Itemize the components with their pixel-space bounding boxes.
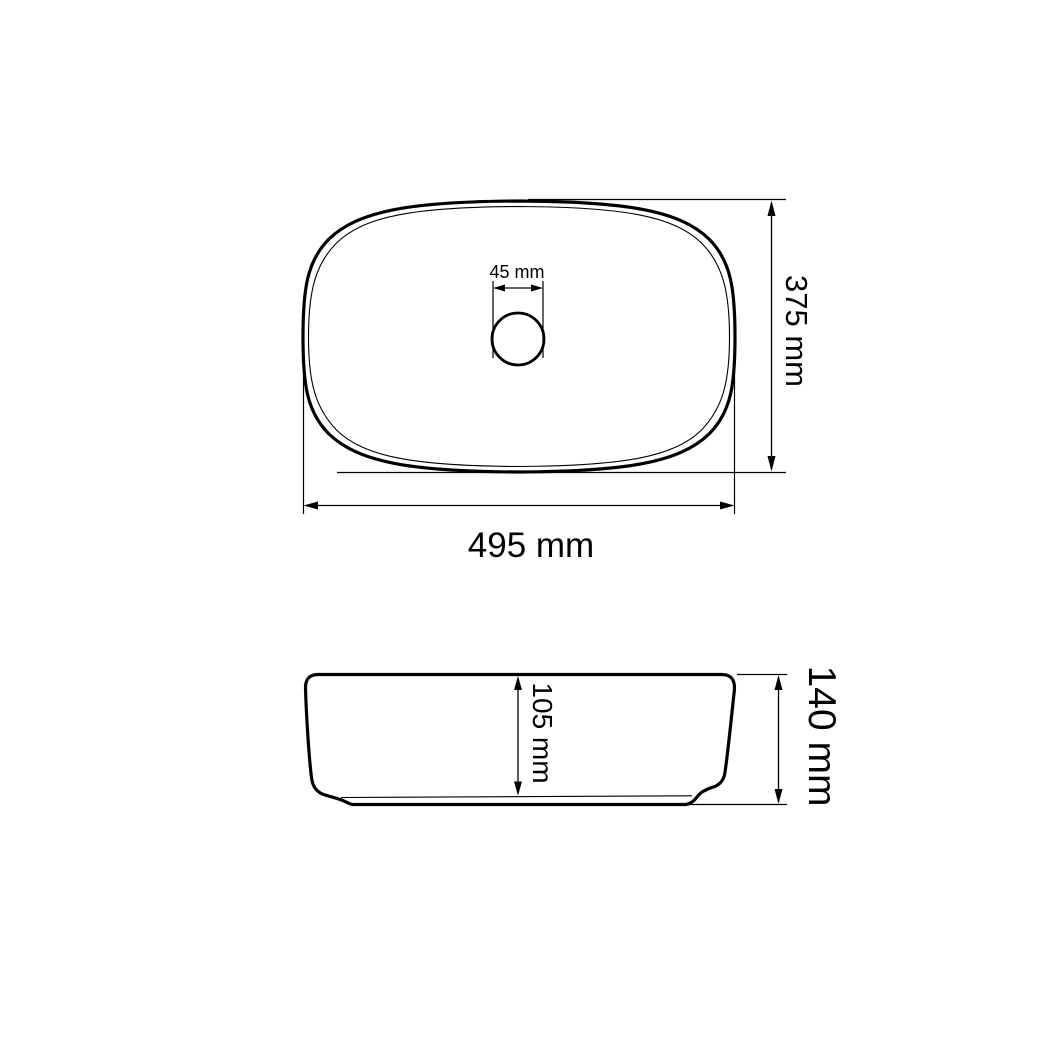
basin-dimension-drawing: 45 mm 375 mm 495 mm	[0, 0, 1050, 1050]
drain-diameter-dimension: 45 mm	[489, 262, 544, 358]
arrow-up-icon	[768, 201, 776, 217]
top-view-width-label: 495 mm	[468, 526, 594, 565]
top-view-height-dimension: 375 mm	[337, 200, 814, 473]
overall-height-dimension: 140 mm	[688, 666, 843, 807]
side-view: 105 mm 140 mm	[305, 666, 843, 807]
arrow-down-icon	[514, 782, 522, 796]
inner-depth-label: 105 mm	[527, 682, 558, 783]
base-top-edge	[341, 796, 692, 798]
top-view-outer-outline	[303, 201, 735, 472]
inner-depth-dimension: 105 mm	[514, 676, 558, 796]
drain-hole	[492, 313, 544, 365]
top-view-inner-outline	[309, 207, 730, 467]
top-view: 45 mm 375 mm 495 mm	[303, 200, 814, 566]
arrow-right-icon	[531, 285, 543, 292]
arrow-left-icon	[493, 285, 505, 292]
arrow-right-icon	[720, 502, 735, 510]
arrow-left-icon	[304, 502, 319, 510]
top-view-height-label: 375 mm	[779, 275, 814, 387]
technical-drawing-page: 45 mm 375 mm 495 mm	[0, 0, 1050, 1050]
overall-height-label: 140 mm	[800, 666, 843, 807]
arrow-up-icon	[775, 675, 783, 690]
arrow-down-icon	[775, 789, 783, 804]
arrow-down-icon	[768, 456, 776, 472]
drain-diameter-label: 45 mm	[489, 262, 544, 282]
arrow-up-icon	[514, 676, 522, 690]
